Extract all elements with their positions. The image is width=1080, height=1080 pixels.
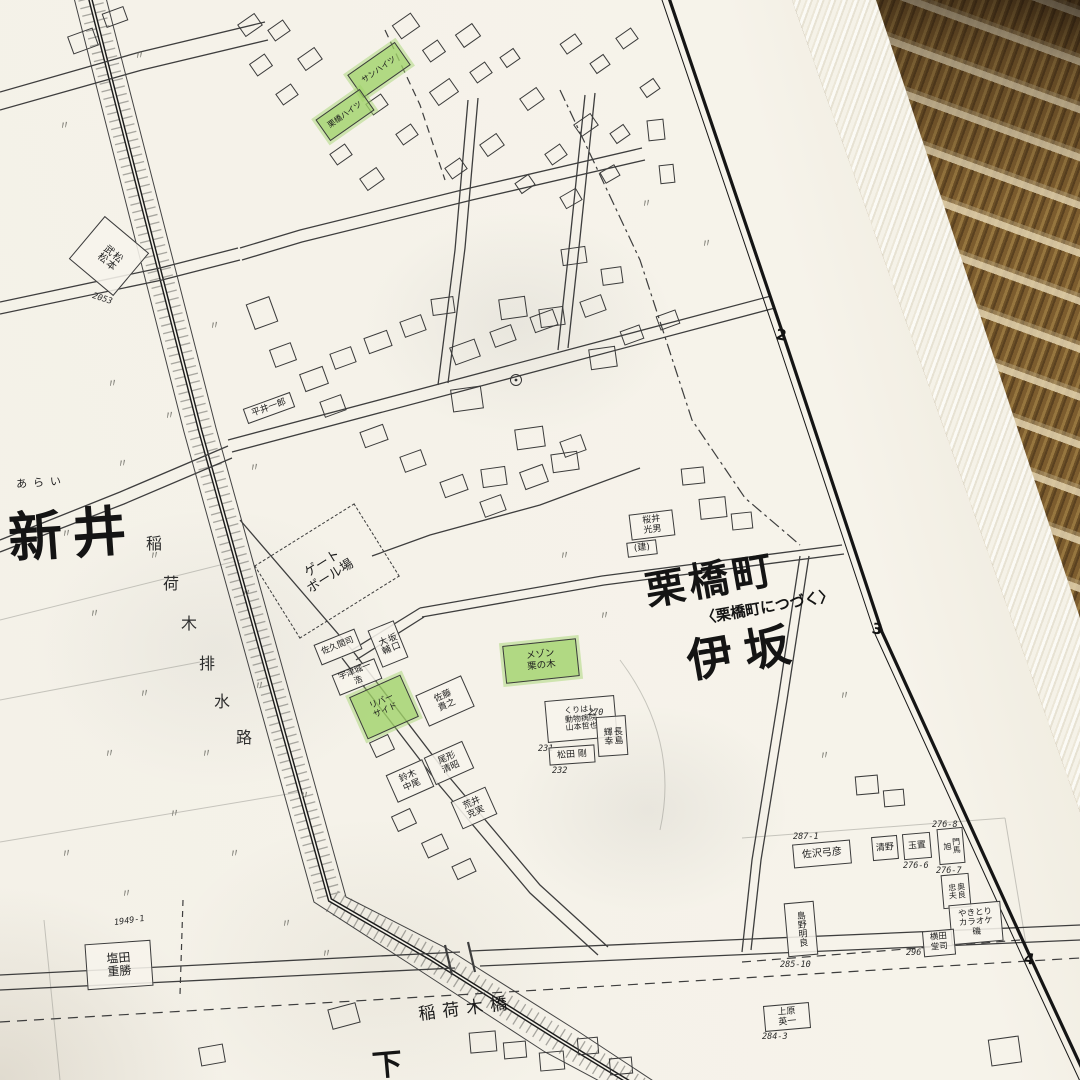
parcel-box bbox=[883, 789, 904, 807]
parcel-box bbox=[590, 54, 610, 73]
lot-number: 285-10 bbox=[780, 960, 811, 970]
parcel-box bbox=[328, 1003, 360, 1030]
parcel-box bbox=[647, 119, 665, 141]
parcel-box bbox=[515, 426, 546, 450]
parcel-box bbox=[561, 246, 587, 265]
parcel-box bbox=[574, 114, 598, 137]
parcel-box bbox=[855, 775, 878, 795]
parcel-box bbox=[392, 13, 419, 39]
parcel-box bbox=[250, 54, 273, 76]
canal-label-char: 水 bbox=[214, 688, 230, 712]
paddy-mark: 〃 bbox=[120, 886, 133, 901]
building-label: 横田 堂司 bbox=[922, 929, 956, 958]
parcel-box bbox=[470, 62, 492, 83]
paddy-mark: 〃 bbox=[60, 846, 73, 861]
gateball-label: ゲート ボール場 bbox=[297, 545, 357, 597]
canal-label-char: 木 bbox=[181, 610, 197, 634]
parcel-box bbox=[102, 7, 127, 28]
parcel-box bbox=[320, 395, 346, 418]
paddy-mark: 〃 bbox=[228, 846, 241, 861]
parcel-box bbox=[469, 1031, 497, 1053]
paddy-mark: 〃 bbox=[116, 456, 129, 471]
paddy-mark: 〃 bbox=[138, 686, 151, 701]
parcel-box bbox=[452, 858, 476, 879]
parcel-box bbox=[640, 78, 660, 97]
building-label: 玉置 bbox=[902, 832, 932, 860]
parcel-box bbox=[480, 495, 506, 518]
paddy-mark: 〃 bbox=[280, 916, 293, 931]
parcel-box bbox=[330, 144, 352, 165]
parcel-box bbox=[400, 315, 426, 338]
parcel-box bbox=[422, 834, 449, 858]
building-label: 島野明良 bbox=[784, 901, 819, 957]
lot-number: 276-8 bbox=[932, 820, 958, 830]
parcel-box bbox=[616, 28, 638, 49]
paddy-mark: 〃 bbox=[200, 746, 213, 761]
parcel-box bbox=[370, 735, 395, 758]
paddy-mark: 〃 bbox=[208, 318, 221, 333]
parcel-box bbox=[589, 346, 618, 369]
parcel-box bbox=[298, 48, 322, 71]
parcel-box bbox=[500, 48, 520, 67]
paddy-mark: 〃 bbox=[240, 586, 253, 601]
paddy-mark: 〃 bbox=[58, 118, 71, 133]
building-label: 長島 輝幸 bbox=[596, 715, 629, 757]
paddy-mark: 〃 bbox=[88, 606, 101, 621]
lot-number: 287-1 bbox=[793, 832, 819, 842]
canal-label-char: 荷 bbox=[163, 570, 179, 594]
paddy-mark: 〃 bbox=[163, 408, 176, 423]
paddy-mark: 〃 bbox=[700, 236, 713, 251]
parcel-box bbox=[560, 34, 582, 54]
parcel-box bbox=[503, 1041, 526, 1059]
paddy-mark: 〃 bbox=[598, 608, 611, 623]
building-label-highlighted: メゾン 栗の木 bbox=[502, 638, 580, 684]
paddy-mark: 〃 bbox=[253, 678, 266, 693]
paddy-mark: 〃 bbox=[133, 48, 146, 63]
parcel-box bbox=[276, 84, 298, 105]
parcel-box bbox=[431, 297, 455, 316]
parcel-box bbox=[560, 188, 582, 208]
lot-number: 284-3 bbox=[762, 1032, 788, 1042]
parcel-box bbox=[530, 309, 558, 332]
paddy-mark: 〃 bbox=[168, 806, 181, 821]
canal-label-char: 路 bbox=[236, 724, 252, 748]
parcel-box bbox=[520, 88, 544, 111]
parcel-box bbox=[360, 424, 388, 447]
canal-label-char: 排 bbox=[199, 650, 215, 674]
parcel-box bbox=[481, 466, 507, 487]
building-label: 門馬 旭 bbox=[936, 827, 965, 865]
parcel-box bbox=[580, 295, 606, 318]
paddy-mark: 〃 bbox=[248, 460, 261, 475]
parcel-box bbox=[199, 1044, 226, 1066]
parcel-box bbox=[731, 512, 753, 530]
parcel-box bbox=[445, 158, 467, 179]
parcel-box bbox=[681, 467, 705, 485]
parcel-box bbox=[270, 343, 297, 367]
paddy-mark: 〃 bbox=[818, 748, 831, 763]
building-label: 松田 剛 bbox=[548, 744, 595, 765]
paddy-mark: 〃 bbox=[103, 746, 116, 761]
building-label: 清野 bbox=[871, 835, 899, 861]
parcel-box bbox=[392, 809, 417, 832]
lot-number: 232 bbox=[552, 766, 567, 776]
parcel-box bbox=[480, 134, 504, 157]
parcel-box bbox=[520, 464, 549, 489]
photo-of-map-book: 〃〃〃〃〃〃〃〃〃〃〃〃〃〃〃〃〃〃〃〃〃〃〃〃〃〃〃〃 あらい 新井 栗橋町 … bbox=[0, 0, 1080, 1080]
parcel-box bbox=[423, 40, 446, 62]
building-label: 塩田 重勝 bbox=[84, 940, 153, 990]
parcel-box bbox=[330, 347, 356, 370]
parcel-box bbox=[545, 144, 567, 165]
building-label: 桜井 光男 bbox=[629, 509, 676, 540]
parcel-box bbox=[601, 267, 623, 286]
parcel-box bbox=[610, 124, 630, 143]
parcel-box bbox=[430, 79, 459, 106]
parcel-box bbox=[360, 168, 384, 191]
lot-number: 296 bbox=[906, 948, 921, 958]
parcel-box bbox=[490, 325, 516, 348]
parcel-box bbox=[560, 435, 586, 458]
paddy-mark: 〃 bbox=[838, 688, 851, 703]
lot-number: 276-6 bbox=[903, 861, 929, 871]
parcel-box bbox=[440, 474, 468, 497]
paddy-mark: 〃 bbox=[298, 788, 311, 803]
parcel-box bbox=[656, 310, 680, 330]
parcel-box bbox=[699, 497, 727, 520]
parcel-box bbox=[246, 297, 277, 330]
paddy-mark: 〃 bbox=[640, 196, 653, 211]
lot-number: 270 bbox=[588, 708, 603, 718]
building-label: 佐沢弓彦 bbox=[792, 840, 852, 869]
parcel-box bbox=[364, 330, 392, 353]
parcel-box bbox=[396, 124, 418, 145]
parcel-box bbox=[551, 451, 579, 472]
area-label-shimo: 下 bbox=[370, 1039, 404, 1080]
parcel-box bbox=[400, 450, 426, 473]
building-label: やきとり カラオケ 磯 bbox=[948, 901, 1003, 945]
paddy-mark: 〃 bbox=[320, 946, 333, 961]
paddy-mark: 〃 bbox=[106, 376, 119, 391]
canal-label-char: 稲 bbox=[146, 530, 162, 554]
paddy-mark: 〃 bbox=[558, 548, 571, 563]
parcel-box bbox=[300, 366, 329, 391]
parcel-box bbox=[450, 339, 481, 365]
parcel-box bbox=[988, 1036, 1021, 1066]
building-label: 上原 英一 bbox=[763, 1002, 811, 1032]
parcel-box bbox=[456, 24, 481, 48]
parcel-box bbox=[499, 296, 528, 319]
parcel-box bbox=[659, 164, 675, 183]
lot-number: 276-7 bbox=[936, 866, 962, 876]
area-label-arai: 新井 bbox=[5, 486, 138, 574]
parcel-box bbox=[268, 20, 290, 41]
